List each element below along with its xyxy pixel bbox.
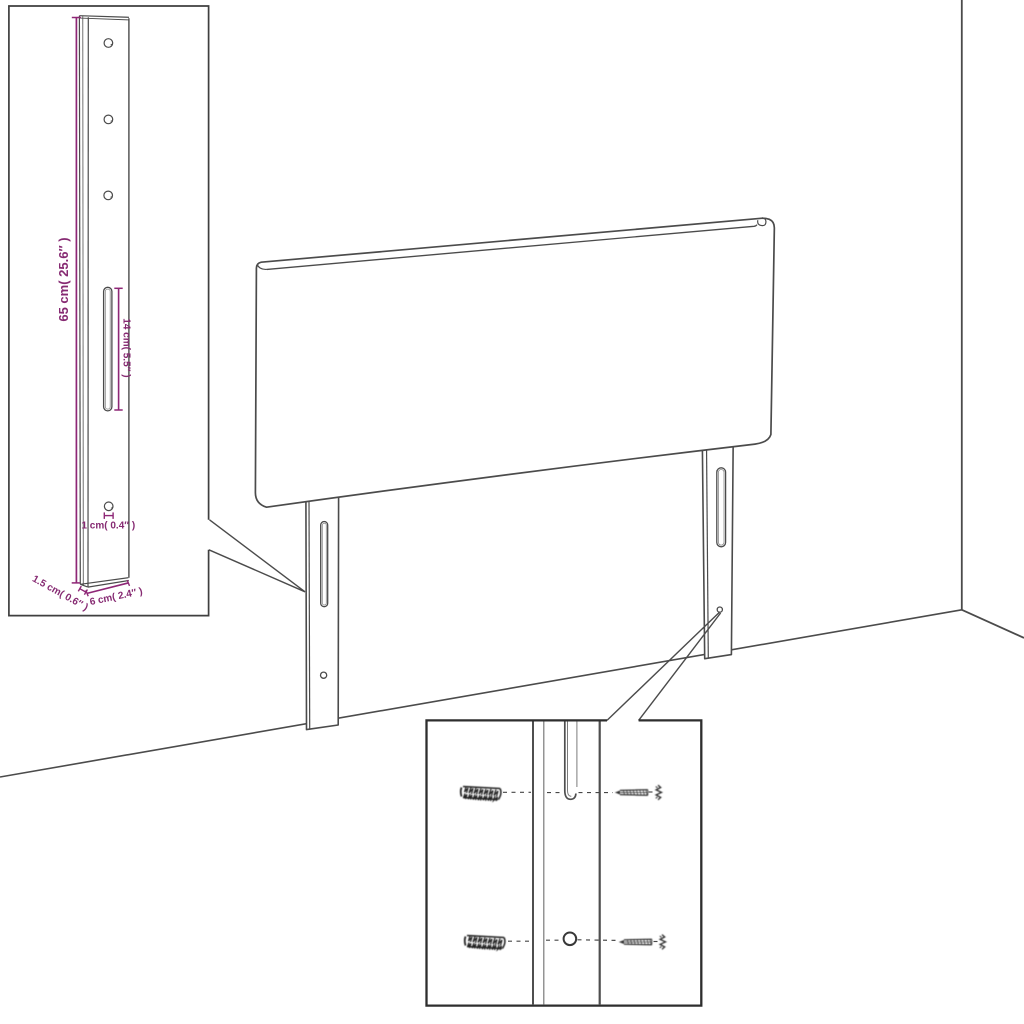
svg-text:14 cm( 5.5″ ): 14 cm( 5.5″ ) — [120, 318, 131, 377]
svg-text:65 cm( 25.6″ ): 65 cm( 25.6″ ) — [56, 237, 71, 321]
svg-text:1 cm( 0.4″ ): 1 cm( 0.4″ ) — [81, 520, 135, 531]
